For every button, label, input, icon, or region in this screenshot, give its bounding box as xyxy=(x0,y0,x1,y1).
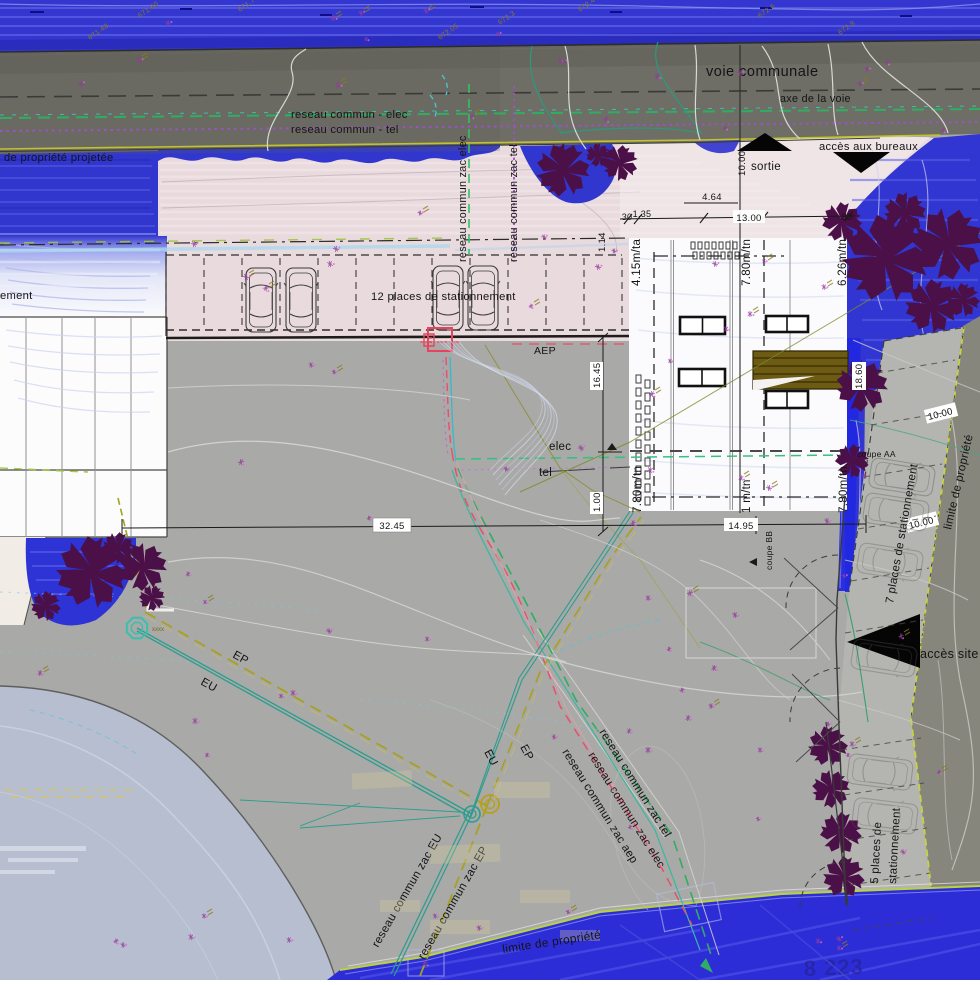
svg-text:6.26m/tn: 6.26m/tn xyxy=(837,239,849,286)
svg-text:12 places de stationnement: 12 places de stationnement xyxy=(371,291,516,303)
svg-text:reseau commun zac elec: reseau commun zac elec xyxy=(457,135,469,262)
svg-text:sortie: sortie xyxy=(751,161,781,173)
svg-text:reseau commun - elec: reseau commun - elec xyxy=(291,109,408,121)
svg-text:1.14: 1.14 xyxy=(597,232,608,252)
svg-text:30: 30 xyxy=(622,212,633,222)
svg-text:voie communale: voie communale xyxy=(706,64,819,80)
svg-text:13.00: 13.00 xyxy=(736,213,761,224)
svg-text:coupe AA: coupe AA xyxy=(857,449,896,459)
svg-text:xxxx: xxxx xyxy=(152,627,164,633)
svg-text:10.00: 10.00 xyxy=(737,151,748,176)
svg-text:1.35: 1.35 xyxy=(633,209,652,219)
svg-text:tel: tel xyxy=(539,467,552,479)
svg-text:reseau commun - tel: reseau commun - tel xyxy=(291,124,399,136)
svg-text:accès site: accès site xyxy=(920,647,979,661)
svg-text:de propriété projetée: de propriété projetée xyxy=(4,152,114,164)
svg-text:ement: ement xyxy=(0,290,33,302)
svg-text:coupe BB: coupe BB xyxy=(764,531,774,570)
svg-text:4.64: 4.64 xyxy=(702,192,722,203)
svg-text:reseau commun zac tel: reseau commun zac tel xyxy=(508,144,520,262)
svg-text:16.45: 16.45 xyxy=(592,363,603,388)
svg-text:1 m/tn: 1 m/tn xyxy=(741,479,753,513)
svg-text:axe de la voie: axe de la voie xyxy=(780,93,851,105)
svg-text:18.60: 18.60 xyxy=(854,364,865,389)
svg-text:7.80m/tn: 7.80m/tn xyxy=(741,239,753,286)
svg-text:7.80m/tn: 7.80m/tn xyxy=(632,466,644,513)
svg-text:14.95: 14.95 xyxy=(728,521,753,532)
svg-text:32.45: 32.45 xyxy=(379,521,404,532)
svg-text:30: 30 xyxy=(842,212,853,222)
svg-text:accès aux bureaux: accès aux bureaux xyxy=(819,141,918,153)
svg-text:4.15m/ta: 4.15m/ta xyxy=(631,239,643,286)
svg-text:1.00: 1.00 xyxy=(592,492,603,512)
svg-text:elec: elec xyxy=(549,441,571,453)
svg-text:AEP: AEP xyxy=(534,345,556,357)
